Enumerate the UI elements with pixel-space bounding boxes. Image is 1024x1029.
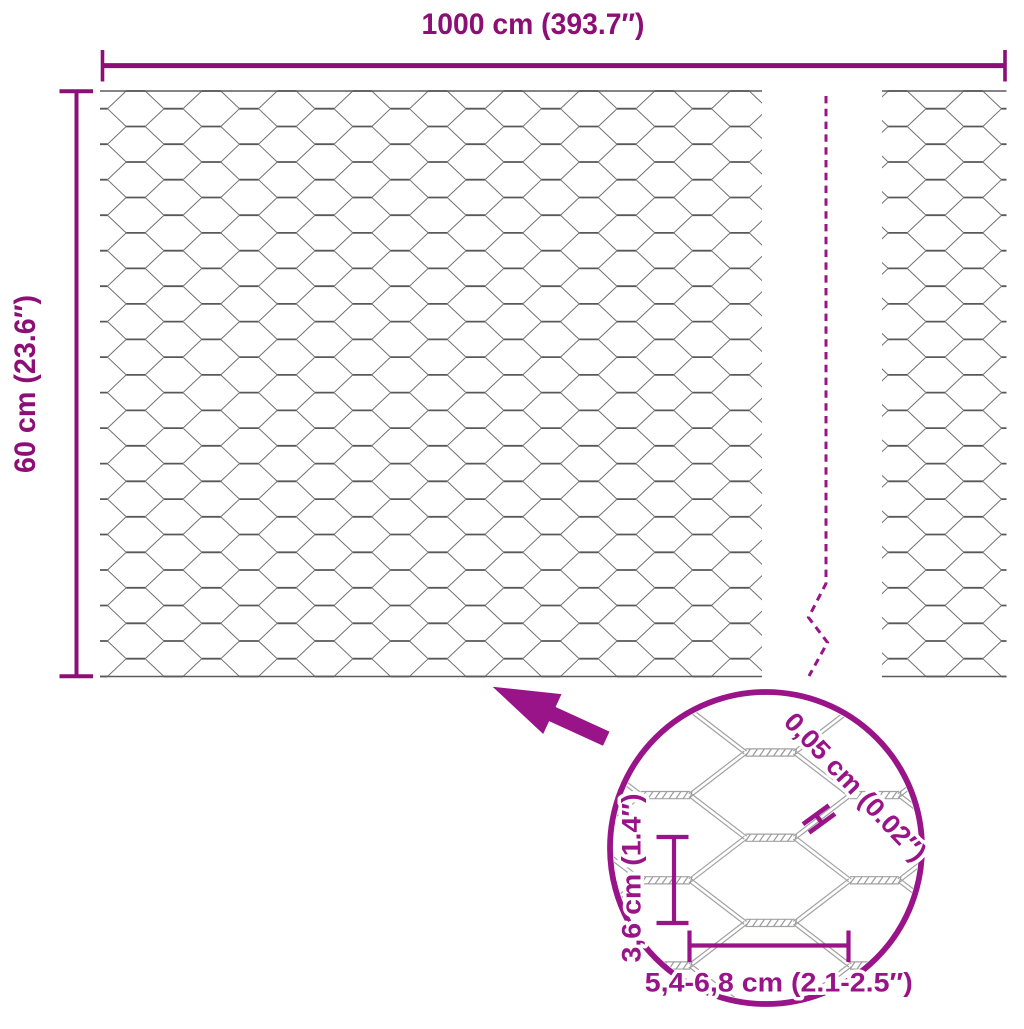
svg-text:3,6 cm (1.4″): 3,6 cm (1.4″) <box>617 794 647 963</box>
svg-text:1000 cm (393.7″): 1000 cm (393.7″) <box>422 8 645 41</box>
svg-text:60 cm (23.6″): 60 cm (23.6″) <box>9 295 42 473</box>
svg-text:5,4-6,8 cm (2.1-2.5″): 5,4-6,8 cm (2.1-2.5″) <box>645 968 913 998</box>
